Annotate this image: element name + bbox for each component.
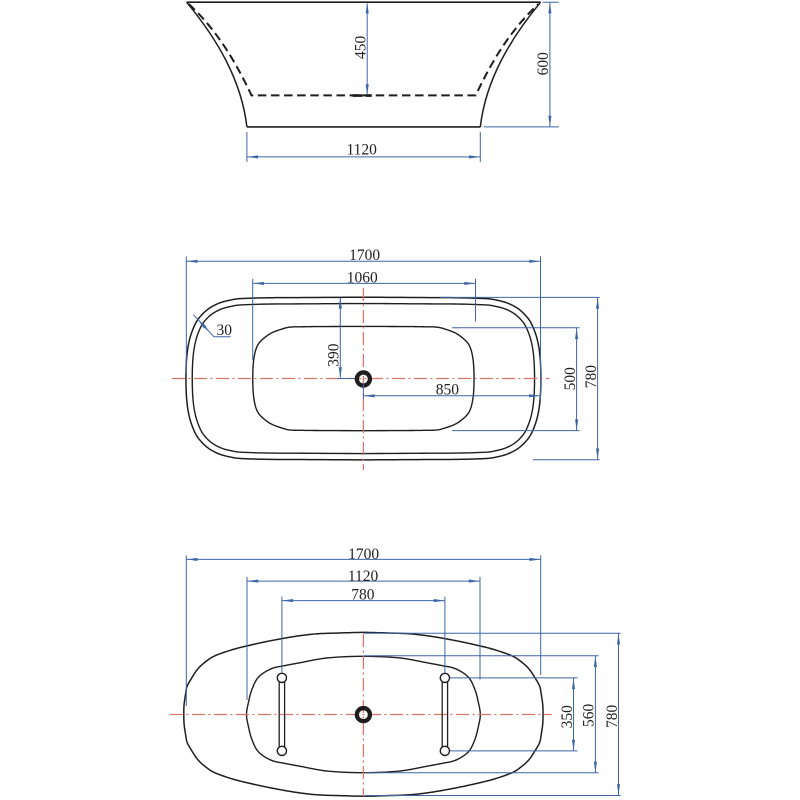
svg-text:780: 780 xyxy=(351,586,375,603)
svg-text:850: 850 xyxy=(436,382,460,399)
svg-text:500: 500 xyxy=(562,367,579,391)
svg-text:780: 780 xyxy=(583,365,600,389)
svg-text:1060: 1060 xyxy=(347,269,378,286)
svg-text:390: 390 xyxy=(326,343,343,367)
svg-text:1700: 1700 xyxy=(349,247,380,264)
svg-text:1700: 1700 xyxy=(348,546,379,563)
svg-text:780: 780 xyxy=(604,705,621,729)
svg-text:1120: 1120 xyxy=(348,568,379,585)
svg-text:450: 450 xyxy=(352,36,369,60)
svg-text:560: 560 xyxy=(581,704,598,728)
svg-text:30: 30 xyxy=(216,322,232,339)
svg-text:600: 600 xyxy=(535,52,552,75)
svg-text:1120: 1120 xyxy=(346,141,377,158)
svg-text:350: 350 xyxy=(559,705,576,729)
